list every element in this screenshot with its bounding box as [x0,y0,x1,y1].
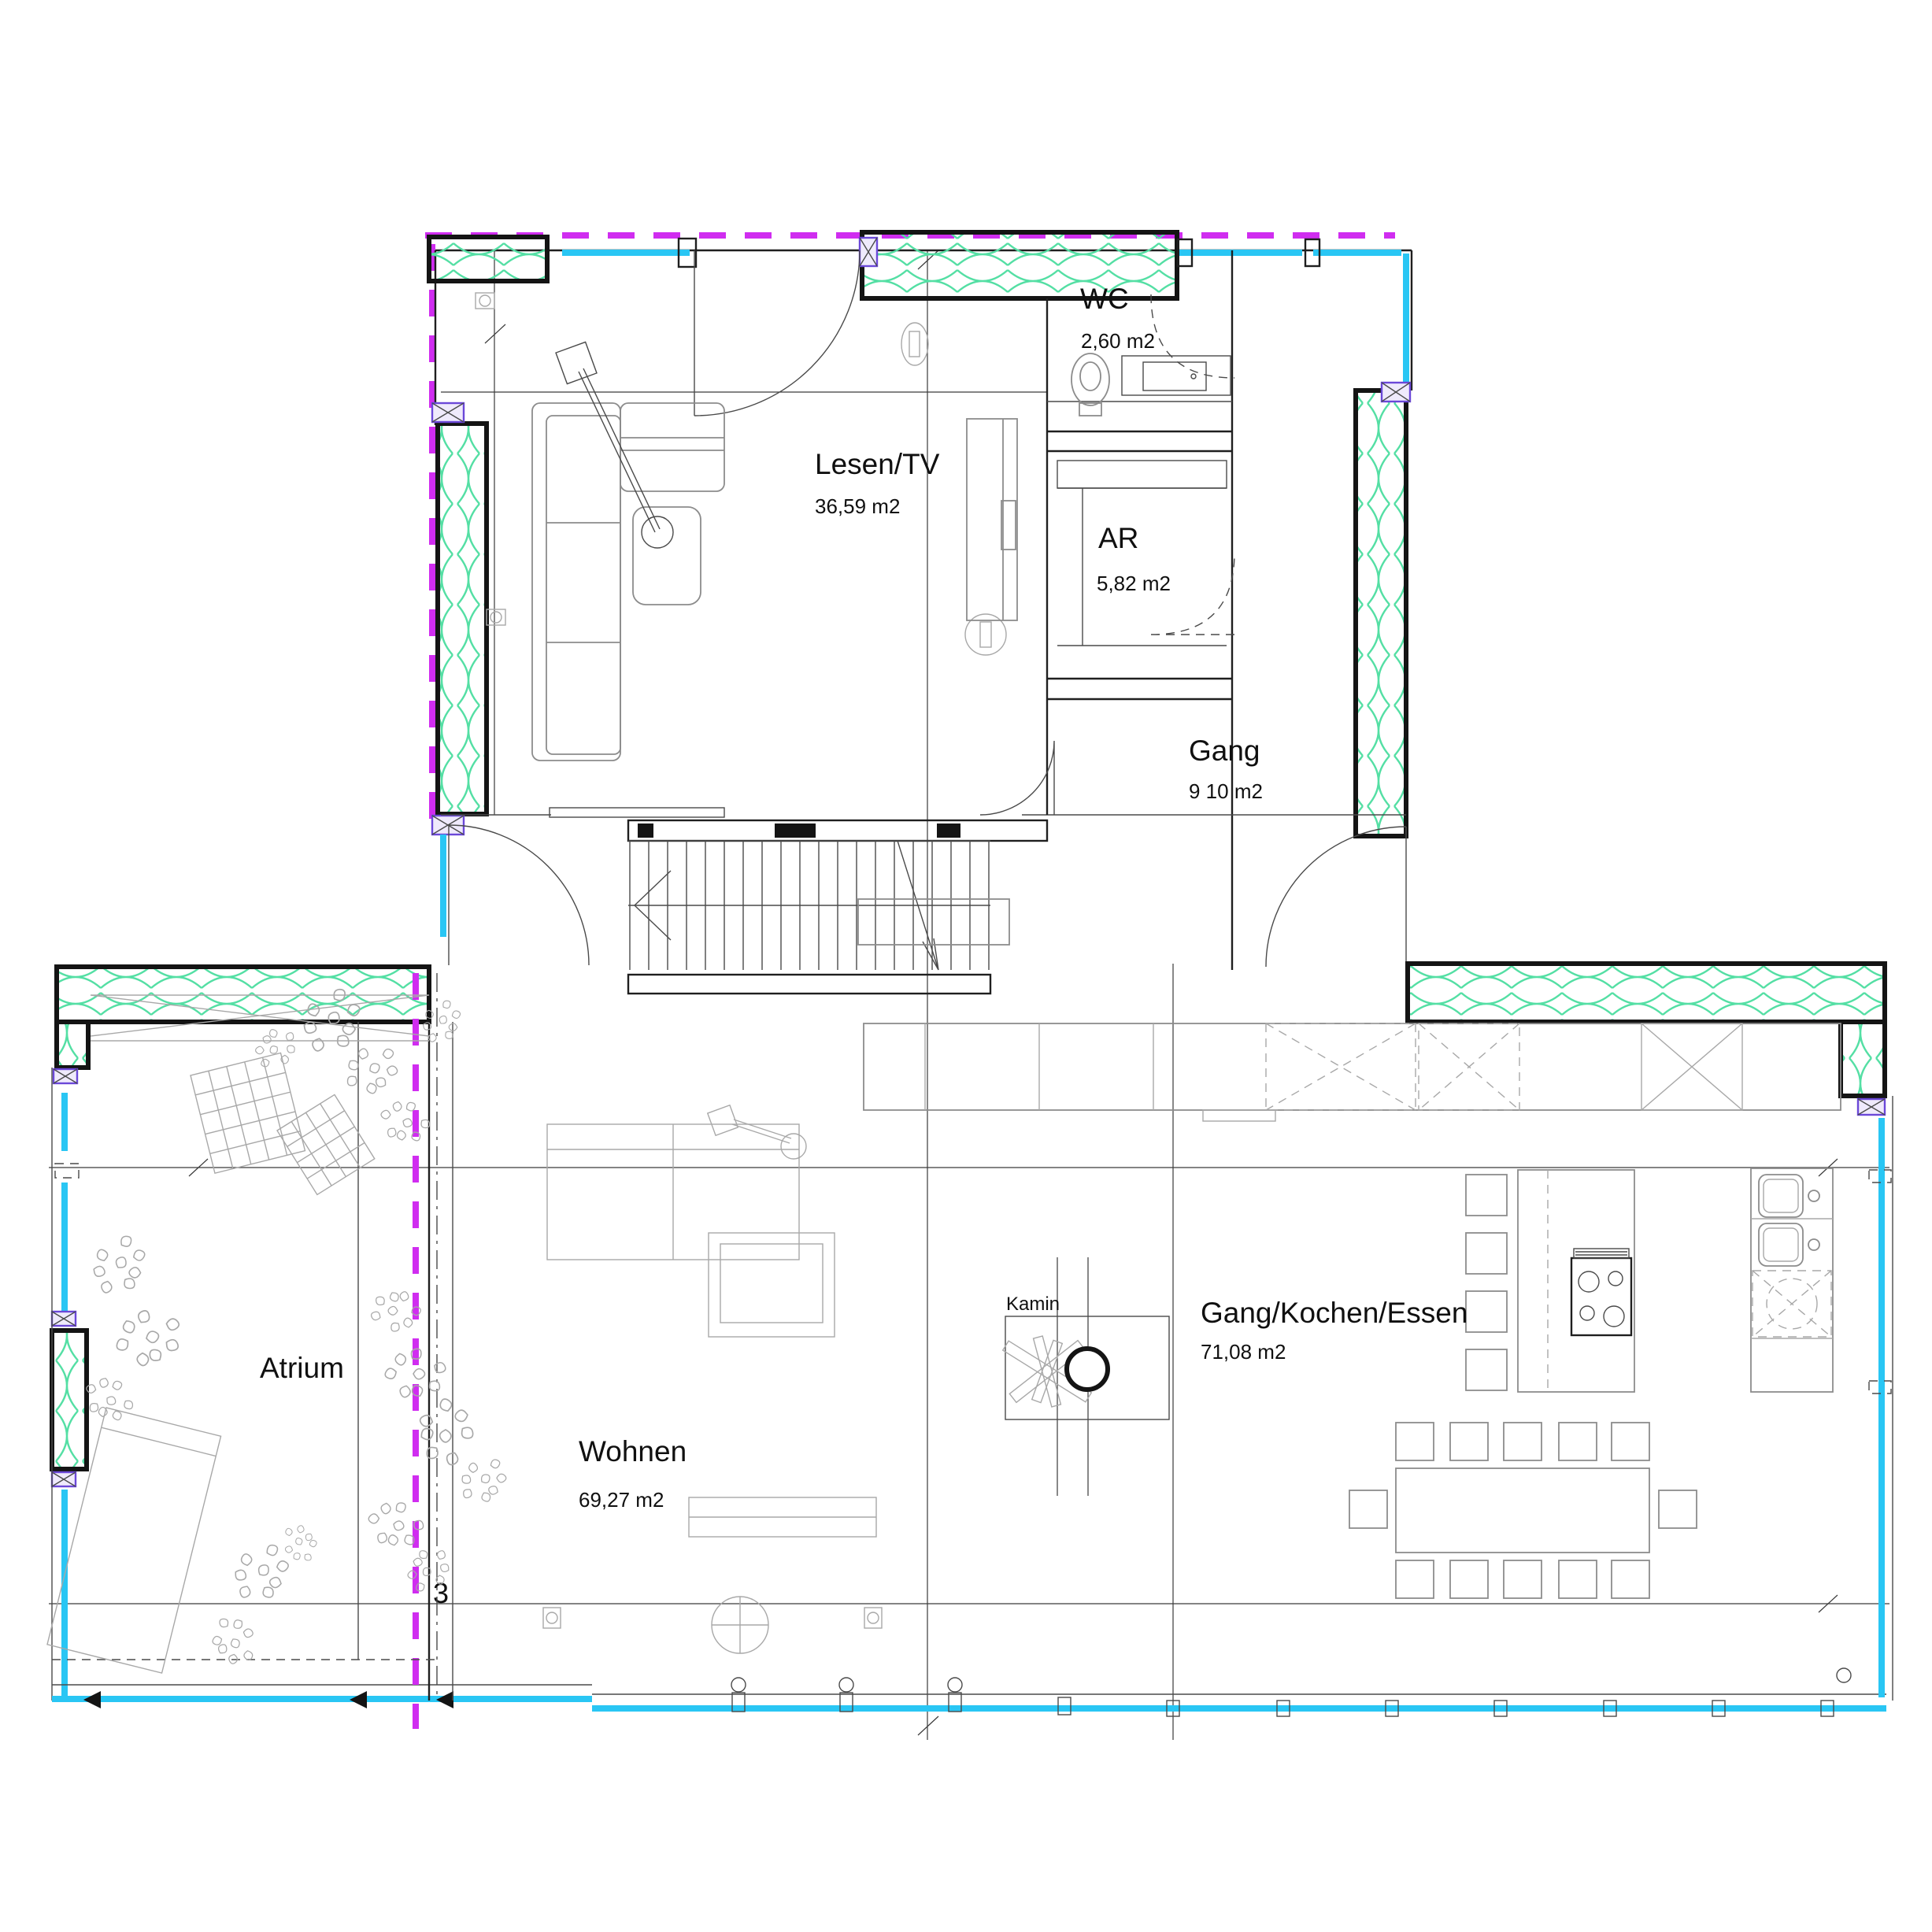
tall-cabinet-dashed [1419,1023,1519,1110]
tall-cabinet-dashed [1266,1023,1416,1110]
bar-chairs [1466,1175,1507,1390]
window-joint-icon [432,403,464,422]
terrace-door-left [443,825,589,965]
room-area-wohnen: 69,27 m2 [579,1488,664,1512]
window-joint-symbols-upper [432,238,1410,835]
wc-door-dashed [1151,294,1234,378]
upper-wing: Lesen/TV 36,59 m2 WC 2,60 m2 AR 5,82 m2 … [425,232,1412,970]
room-label-atrium: Atrium [260,1352,344,1384]
door-right-wing [1266,827,1406,967]
counter-appliance [1203,1110,1275,1121]
kitchen [864,1023,1841,1392]
room-area-wc: 2,60 m2 [1081,329,1155,353]
kitchen-counter-top [864,1023,1841,1110]
floor-lamp-icon [708,1105,806,1159]
room-label-wc: WC [1080,283,1129,315]
ottoman [633,507,701,605]
entrance-door [694,250,860,416]
glazing-bottom [52,1668,1886,1716]
floor-plan: Lesen/TV 36,59 m2 WC 2,60 m2 AR 5,82 m2 … [0,0,1932,1932]
window-joint-icon [1382,383,1410,402]
toilet-icon [1071,353,1109,416]
ar-shelf [1057,461,1227,488]
kitchen-counter-right [1751,1168,1833,1392]
kitchen-island [1518,1170,1634,1392]
trees [86,987,513,1672]
insulated-wall-lower-right [1408,964,1885,1115]
window-joint-icon [52,1472,76,1486]
sink-icon [1759,1223,1819,1266]
room-label-gang-kochen-essen: Gang/Kochen/Essen [1201,1297,1468,1329]
dining-table [1396,1468,1649,1553]
glazing-right [1869,1096,1893,1701]
pergola-grid [191,1053,305,1173]
room-label-wohnen: Wohnen [579,1435,687,1468]
room-area-gang: 9 10 m2 [1189,779,1263,803]
round-table-icon [712,1597,768,1653]
tv-lowboard [967,419,1017,620]
room-label-ar: AR [1098,522,1138,554]
tall-cabinet [1641,1023,1742,1110]
room-label-gang: Gang [1189,735,1260,767]
room-area-gang-kochen-essen: 71,08 m2 [1201,1340,1286,1364]
room-label-lesen-tv: Lesen/TV [815,448,940,480]
flue-icon [1067,1349,1108,1390]
dining-set [1349,1423,1697,1598]
core-door [980,741,1054,815]
cooktop-icon [1571,1249,1631,1335]
window-joint-icon [860,238,877,266]
atrium [47,973,513,1729]
insulated-wall-lower-left [54,967,429,1083]
room-area-ar: 5,82 m2 [1097,572,1171,595]
room-area-lesen-tv: 36,59 m2 [815,494,900,518]
living-furniture [543,1105,882,1653]
staircase [550,808,1047,994]
insulated-wall-panel [52,1331,87,1469]
window-joint-icon [1858,1099,1885,1115]
floor-lamp-icon [556,342,673,548]
dishwasher-dashed [1752,1271,1831,1337]
wc-sink [1143,362,1206,390]
axis-number: 3 [433,1577,449,1609]
window-joint-icon [52,1312,76,1326]
room-label-kamin: Kamin [1006,1294,1060,1315]
window-joint-icon [54,1069,77,1083]
fireplace [1003,1316,1169,1419]
sink-icon [1759,1175,1819,1217]
sofa [532,342,724,761]
pergola-grid [277,1094,375,1194]
